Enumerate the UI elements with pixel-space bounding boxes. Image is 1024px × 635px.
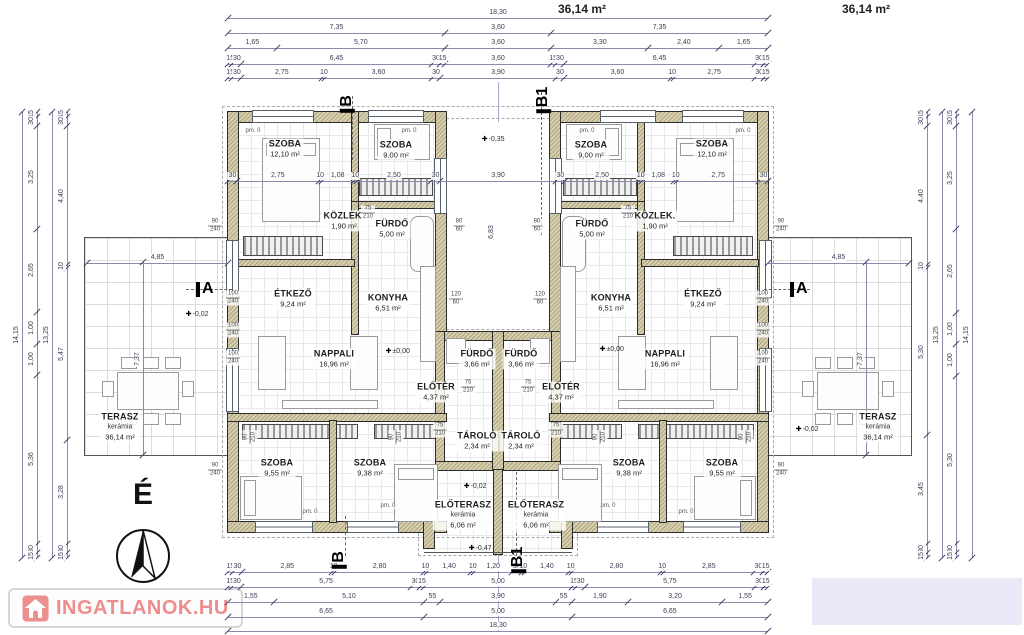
- parapet-tag: pm. 0: [245, 128, 260, 134]
- dimension-label: 2,85: [701, 563, 717, 571]
- dimension-label: 4,40: [58, 188, 66, 204]
- dimension-line: [228, 617, 768, 618]
- dimension-line: [67, 112, 68, 558]
- dimension-label: 30: [555, 69, 565, 77]
- window: [255, 521, 313, 533]
- wardrobe-hatch: [243, 236, 323, 256]
- size-tag: 75210: [361, 206, 375, 221]
- furniture: [244, 480, 256, 516]
- room-name: ÉTKEZŐ: [274, 290, 312, 299]
- level-marker: ✚-0,02: [186, 310, 209, 318]
- dimension-line: [37, 112, 38, 558]
- size-tag: 12060: [449, 292, 463, 307]
- furniture: [282, 400, 378, 409]
- furniture: [165, 357, 181, 369]
- furniture: [815, 357, 831, 369]
- room-area: 5,00 m²: [376, 230, 409, 239]
- dimension-line: [228, 48, 768, 49]
- section-flag-bar: [339, 109, 354, 113]
- dimension-line: [972, 112, 973, 558]
- size-tag: 100240: [756, 323, 770, 338]
- window: [368, 110, 424, 123]
- dimension-line: [228, 587, 768, 588]
- dimension-line: [228, 78, 768, 79]
- dimension-label: 6,65: [662, 608, 678, 616]
- room-label: TERASZkerámia36,14 m²: [857, 412, 898, 443]
- level-cross-icon: ✚: [386, 348, 392, 355]
- parapet-tag: pm. 0: [735, 128, 750, 134]
- dimension-label: 15: [58, 551, 66, 561]
- dimension-label: 15: [761, 55, 771, 63]
- furniture: [802, 381, 814, 397]
- dimension-label: 5,10: [341, 593, 357, 601]
- size-tag-width: 90: [208, 463, 222, 471]
- furniture: [102, 381, 114, 397]
- size-tag-width: 100: [756, 351, 770, 359]
- room-area: 9,55 m²: [706, 469, 739, 478]
- room-label: SZOBA9,38 m²: [352, 458, 389, 479]
- dimension-label: 2,85: [279, 563, 295, 571]
- dimension-label: 1,55: [737, 593, 753, 601]
- dimension-label: 3,90: [490, 593, 506, 601]
- dimension-label: 10: [657, 563, 667, 571]
- wardrobe-hatch: [560, 424, 622, 439]
- dimension-label: 1,65: [736, 39, 752, 47]
- furniture: [560, 266, 576, 362]
- dimension-label: 3,45: [918, 482, 926, 498]
- size-tag-height: 240: [756, 299, 770, 306]
- room-area: 3,66 m²: [505, 360, 538, 369]
- room-name: KÖZLEK.: [635, 212, 676, 221]
- wall-segment: [660, 421, 666, 522]
- wall-segment: [550, 112, 560, 340]
- size-tag-width: 100: [226, 323, 240, 331]
- section-line: [541, 92, 542, 235]
- room-label: FÜRDŐ5,00 m²: [574, 219, 611, 240]
- dimension-label: 30: [232, 578, 242, 586]
- dimension-tick: [764, 613, 771, 620]
- dimension-line: [942, 112, 943, 558]
- watermark-logo: INGATLANOK.HU: [8, 588, 243, 628]
- room-name: SZOBA: [575, 141, 608, 150]
- window: [597, 521, 649, 533]
- parapet-tag: pm. 0: [401, 128, 416, 134]
- size-tag-width: 75: [461, 380, 475, 388]
- dimension-label: 2,75: [274, 69, 290, 77]
- area-label-right: 36,14 m²: [842, 2, 890, 16]
- size-tag: 90240: [774, 463, 788, 478]
- size-tag-height: 240: [756, 331, 770, 338]
- size-tag-height: 60: [449, 300, 463, 307]
- dimension-label: 1,00: [28, 351, 36, 367]
- section-marker: B1: [535, 87, 551, 113]
- room-label: FÜRDŐ3,66 m²: [503, 349, 540, 370]
- size-tag-height: 60: [533, 300, 547, 307]
- room-name: ELŐTÉR: [417, 383, 455, 392]
- furniture: [398, 468, 434, 480]
- size-tag: 90210: [739, 430, 754, 444]
- dimension-label: 10: [636, 172, 646, 180]
- room-name: KONYHA: [368, 294, 408, 303]
- size-tag-height: 240: [774, 471, 788, 478]
- dimension-label: 5,30: [918, 344, 926, 360]
- furniture: [882, 381, 894, 397]
- dimension-label: 4,40: [918, 188, 926, 204]
- room-area: 9,00 m²: [380, 151, 413, 160]
- level-value: -0,47: [476, 545, 492, 552]
- parapet-tag: pm. 0: [302, 509, 317, 515]
- room-label: SZOBA12,10 m²: [694, 139, 731, 160]
- room-name: TÁROLÓ: [457, 432, 496, 441]
- size-tag: 75210: [433, 423, 447, 438]
- room-name: SZOBA: [706, 459, 739, 468]
- furniture: [143, 357, 159, 369]
- dimension-label: 30: [232, 55, 242, 63]
- room-name: SZOBA: [380, 141, 413, 150]
- size-tag-height: 60: [532, 227, 543, 234]
- level-value: ±0,00: [606, 346, 623, 353]
- level-marker: ✚-0,02: [464, 482, 487, 490]
- dimension-label: 1,00: [947, 352, 955, 368]
- size-tag-height: 60: [454, 227, 465, 234]
- room-area: 12,10 m²: [269, 150, 302, 159]
- level-marker: ✚-0,02: [796, 425, 819, 433]
- room-name: NAPPALI: [314, 350, 354, 359]
- dimension-label: 3,25: [947, 170, 955, 186]
- room-area: 4,37 m²: [417, 393, 455, 402]
- room-name: FÜRDŐ: [505, 350, 538, 359]
- dimension-line: [228, 64, 768, 65]
- room-label: ELŐTÉR4,37 m²: [540, 382, 582, 403]
- dimension-label: 2,65: [947, 263, 955, 279]
- size-tag: 90210: [389, 430, 404, 444]
- room-name: SZOBA: [354, 459, 387, 468]
- dimension-line: [87, 263, 228, 264]
- room-label: TERASZkerámia36,14 m²: [99, 412, 140, 443]
- room-name: KONYHA: [591, 294, 631, 303]
- dimension-line: [956, 112, 957, 558]
- dimension-label: 1,00: [28, 320, 36, 336]
- room-name: SZOBA: [696, 140, 729, 149]
- size-tag-width: 90: [739, 430, 747, 444]
- dimension-label: 30: [759, 172, 769, 180]
- dimension-label: 10: [667, 69, 677, 77]
- size-tag-height: 210: [397, 430, 404, 444]
- dimension-label: 2,80: [609, 563, 625, 571]
- size-tag-width: 120: [449, 292, 463, 300]
- dimension-label: 15: [438, 55, 448, 63]
- dimension-label: 10: [918, 262, 926, 272]
- dimension-label: 2,50: [594, 172, 610, 180]
- room-name: TERASZ: [859, 413, 896, 422]
- dimension-label: 3,90: [490, 172, 506, 180]
- dimension-line: [228, 181, 768, 182]
- dimension-label: 15: [761, 563, 771, 571]
- size-tag: 75210: [461, 380, 475, 395]
- room-label: FÜRDŐ5,00 m²: [374, 219, 411, 240]
- dimension-label: 3,25: [28, 170, 36, 186]
- room-area: 1,90 m²: [324, 222, 365, 231]
- wall-segment: [228, 414, 446, 421]
- dimension-label: 5,75: [662, 578, 678, 586]
- size-tag: 100240: [226, 323, 240, 338]
- section-letter: A: [796, 281, 808, 297]
- dimension-line: [143, 262, 144, 455]
- room-area: 9,38 m²: [354, 469, 387, 478]
- room-label: ELŐTÉR4,37 m²: [415, 382, 457, 403]
- dimension-label: 55: [427, 593, 437, 601]
- room-area: 9,55 m²: [261, 469, 294, 478]
- dimension-label: 10: [566, 563, 576, 571]
- furniture: [258, 336, 286, 390]
- dimension-label: 10: [350, 172, 360, 180]
- dimension-label: 30: [232, 69, 242, 77]
- dimension-tick: [764, 44, 771, 51]
- level-cross-icon: ✚: [469, 545, 475, 552]
- room-name: KÖZLEK.: [324, 212, 365, 221]
- size-tag-width: 90: [389, 430, 397, 444]
- size-tag-width: 90: [774, 219, 788, 227]
- dimension-label: 13,25: [43, 325, 51, 345]
- section-marker: A: [790, 281, 808, 297]
- north-arrow-icon: [111, 518, 175, 588]
- size-tag: 12060: [533, 292, 547, 307]
- dimension-label: 13,25: [933, 325, 941, 345]
- dimension-label: 10: [420, 563, 430, 571]
- room-name: NAPPALI: [645, 350, 685, 359]
- wall-segment: [550, 414, 768, 421]
- dimension-label: 5,47: [58, 346, 66, 362]
- room-area: 4,37 m²: [542, 393, 580, 402]
- dimension-label: 18,30: [488, 9, 508, 17]
- dimension-label: 5,30: [947, 452, 955, 468]
- size-tag-height: 240: [226, 331, 240, 338]
- furniture: [618, 400, 714, 409]
- section-letter: B1: [510, 547, 526, 567]
- furniture: [143, 413, 159, 425]
- room-finish: kerámia: [508, 511, 564, 520]
- furniture: [410, 216, 434, 272]
- dimension-tick: [18, 554, 25, 561]
- level-marker: ✚±0,00: [386, 347, 410, 355]
- dimension-line: [228, 572, 768, 573]
- wall-segment: [642, 260, 758, 266]
- porch-edge-line: [424, 552, 572, 553]
- room-label: KÖZLEK.1,90 m²: [633, 211, 678, 232]
- size-tag-height: 210: [461, 388, 475, 395]
- size-tag-height: 240: [756, 359, 770, 366]
- size-tag-width: 75: [361, 206, 375, 214]
- room-label: ELŐTERASZkerámia6,06 m²: [433, 500, 493, 531]
- room-name: ELŐTERASZ: [435, 501, 491, 510]
- furniture: [562, 468, 598, 480]
- size-tag-height: 210: [621, 214, 635, 221]
- size-tag-width: 90: [774, 463, 788, 471]
- size-tag: 75210: [549, 423, 563, 438]
- north-indicator: É: [111, 478, 175, 593]
- room-finish: kerámia: [435, 511, 491, 520]
- room-area: 9,00 m²: [575, 151, 608, 160]
- level-cross-icon: ✚: [796, 426, 802, 433]
- size-tag-height: 240: [208, 471, 222, 478]
- floor-plan-canvas: 36,14 m² 36,14 m² É INGATLANOK.HU 18,307…: [0, 0, 1024, 633]
- furniture: [710, 336, 738, 390]
- dimension-line: [768, 263, 909, 264]
- dimension-tick: [764, 14, 771, 21]
- room-label: ÉTKEZŐ9,24 m²: [682, 289, 724, 310]
- dimension-tick: [764, 29, 771, 36]
- furniture: [815, 413, 831, 425]
- dimension-label: 30: [576, 578, 586, 586]
- room-area: 16,96 m²: [645, 360, 685, 369]
- dimension-label: 7,35: [652, 24, 668, 32]
- dimension-label: 1,08: [330, 172, 346, 180]
- dimension-label: 2,80: [372, 563, 388, 571]
- room-area: 3,66 m²: [461, 360, 494, 369]
- section-letter: A: [202, 281, 214, 297]
- room-area: 2,34 m²: [457, 442, 496, 451]
- room-finish: kerámia: [859, 423, 896, 432]
- dimension-label: 1,40: [441, 563, 457, 571]
- dimension-label: 5,75: [318, 578, 334, 586]
- size-tag: 100240: [756, 351, 770, 366]
- size-tag-height: 210: [433, 431, 447, 438]
- room-label: TÁROLÓ2,34 m²: [455, 431, 498, 452]
- dimension-label: 10: [671, 172, 681, 180]
- wardrobe-hatch: [673, 236, 753, 256]
- parapet-tag: pm. 0: [600, 503, 615, 509]
- dimension-label: 2,75: [706, 69, 722, 77]
- level-value: -0,02: [803, 426, 819, 433]
- dimension-label: 3,20: [667, 593, 683, 601]
- dimension-label: 18,30: [488, 622, 508, 630]
- room-name: FÜRDŐ: [461, 350, 494, 359]
- level-marker: ✚-0,47: [469, 544, 492, 552]
- watermark-text: INGATLANOK.HU: [56, 597, 229, 620]
- section-line: [345, 516, 346, 556]
- dimension-label: 30: [918, 117, 926, 127]
- size-tag: 8060: [532, 219, 543, 234]
- dimension-label: 3,60: [490, 24, 506, 32]
- room-label: SZOBA9,38 m²: [611, 458, 648, 479]
- dimension-label: 15: [28, 551, 36, 561]
- dimension-label: 5,36: [28, 452, 36, 468]
- window: [252, 110, 314, 123]
- dimension-label: 2,65: [28, 262, 36, 278]
- area-label-left: 36,14 m²: [558, 2, 606, 16]
- room-area: 6,06 m²: [508, 521, 564, 530]
- size-tag-width: 75: [521, 380, 535, 388]
- dimension-line: [228, 18, 768, 19]
- level-marker: ✚±0,00: [600, 345, 624, 353]
- parapet-tag: pm. 0: [678, 509, 693, 515]
- size-tag-height: 210: [521, 388, 535, 395]
- size-tag-width: 90: [208, 219, 222, 227]
- dimension-line: [228, 33, 768, 34]
- furniture: [182, 381, 194, 397]
- dimension-label: 5,70: [353, 39, 369, 47]
- size-tag: 90240: [208, 219, 222, 234]
- dimension-label: 30: [58, 117, 66, 127]
- window: [683, 521, 741, 533]
- room-label: SZOBA12,10 m²: [267, 139, 304, 160]
- room-name: SZOBA: [269, 140, 302, 149]
- dimension-tick: [764, 627, 771, 634]
- level-value: -0,35: [489, 136, 505, 143]
- dimension-label: 7,35: [329, 24, 345, 32]
- furniture: [837, 413, 853, 425]
- size-tag-width: 75: [433, 423, 447, 431]
- section-flag-bar: [536, 109, 551, 113]
- dimension-line: [927, 112, 928, 558]
- size-tag-width: 100: [226, 351, 240, 359]
- level-value: -0,02: [193, 311, 209, 318]
- room-name: FÜRDŐ: [376, 220, 409, 229]
- dimension-label: 3,30: [592, 39, 608, 47]
- dimension-label: 5,00: [490, 578, 506, 586]
- dimension-label: 3,60: [490, 39, 506, 47]
- section-letter: B1: [535, 87, 551, 107]
- dimension-label: 30: [947, 117, 955, 127]
- room-label: NAPPALI16,96 m²: [643, 349, 687, 370]
- dimension-tick: [968, 554, 975, 561]
- blank-overlay: [812, 578, 1022, 625]
- size-tag-height: 240: [226, 299, 240, 306]
- size-tag-height: 210: [361, 214, 375, 221]
- size-tag: 75210: [521, 380, 535, 395]
- dimension-label: 30: [28, 117, 36, 127]
- room-area: 6,06 m²: [435, 521, 491, 530]
- dimension-tick: [764, 598, 771, 605]
- dimension-label: 15: [761, 69, 771, 77]
- section-letter: B: [331, 551, 347, 563]
- size-tag: 90210: [243, 430, 258, 444]
- dimension-label: 4,85: [150, 254, 166, 262]
- room-label: SZOBA9,00 m²: [573, 140, 610, 161]
- room-label: SZOBA9,55 m²: [259, 458, 296, 479]
- size-tag-height: 210: [601, 430, 608, 444]
- size-tag-width: 75: [621, 206, 635, 214]
- window: [600, 110, 656, 123]
- dimension-label: 30: [431, 69, 441, 77]
- size-tag-width: 80: [532, 219, 543, 227]
- wardrobe-hatch: [638, 424, 754, 439]
- wall-segment: [494, 470, 502, 554]
- dimension-label: 3,60: [371, 69, 387, 77]
- size-tag: 100240: [226, 351, 240, 366]
- room-name: ELŐTÉR: [542, 383, 580, 392]
- dimension-label: 7,37: [134, 351, 142, 367]
- dimension-label: 55: [559, 593, 569, 601]
- dimension-line: [22, 112, 23, 558]
- section-marker: A: [196, 281, 214, 297]
- size-tag-width: 90: [243, 430, 251, 444]
- section-flag-bar: [790, 282, 794, 297]
- room-label: SZOBA9,00 m²: [378, 140, 415, 161]
- room-area: 6,51 m²: [591, 304, 631, 313]
- size-tag: 90240: [774, 219, 788, 234]
- room-label: KÖZLEK.1,90 m²: [322, 211, 367, 232]
- dimension-label: 10: [315, 172, 325, 180]
- wall-segment: [238, 260, 354, 266]
- dimension-label: 3,60: [490, 55, 506, 63]
- dimension-label: 1,55: [243, 593, 259, 601]
- level-marker: ✚-0,35: [482, 135, 505, 143]
- section-marker: B: [331, 551, 347, 569]
- dimension-label: 15: [417, 578, 427, 586]
- dimension-label: 1,00: [947, 321, 955, 337]
- parapet-tag: pm. 0: [380, 503, 395, 509]
